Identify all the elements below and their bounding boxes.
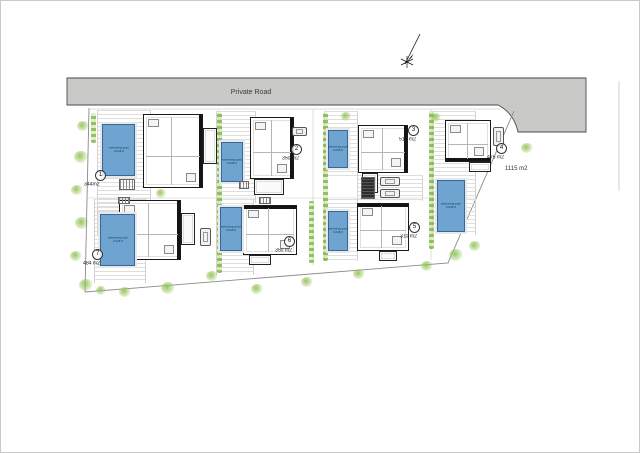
plot-number: 3 [408, 125, 419, 136]
hedge-strip [429, 111, 434, 249]
furniture-icon [186, 173, 196, 182]
hedge-strip [309, 201, 314, 263]
stairs-icon [259, 197, 271, 204]
room-divider [146, 156, 200, 157]
swimming-pool-label: swimming pool4.0x8.0 [441, 203, 461, 210]
swimming-pool: swimming pool4.0x8.0 [220, 207, 242, 251]
bush-icon [79, 279, 93, 291]
room-divider [360, 230, 406, 231]
room-divider [271, 120, 272, 176]
plot-number: 6 [284, 236, 295, 247]
villa-floorplan [358, 125, 408, 173]
stairs-icon [239, 181, 249, 189]
furniture-icon [362, 208, 373, 216]
furniture-icon [148, 119, 159, 127]
swimming-pool: swimming pool4.0x8.0 [437, 180, 465, 232]
room-divider [381, 206, 382, 248]
car-icon [292, 127, 307, 136]
swimming-pool: swimming pool4.0x8.0 [328, 130, 348, 168]
furniture-icon [124, 205, 135, 213]
villa-annex [379, 251, 397, 261]
room-divider [253, 152, 291, 153]
road-label: Private Road [231, 89, 272, 96]
stairs-icon [361, 177, 375, 199]
villa-annex [203, 128, 217, 164]
villa-annex [181, 213, 195, 245]
furniture-icon [248, 210, 259, 218]
furniture-icon [363, 130, 374, 138]
room-divider [268, 208, 269, 252]
room-divider [382, 128, 383, 170]
bush-icon [341, 112, 351, 121]
plot-number: 2 [291, 144, 302, 155]
villa-wall [358, 204, 408, 207]
plot-area: 350 m2 [282, 156, 299, 161]
swimming-pool-label: swimming pool4.0x8.0 [108, 237, 128, 244]
furniture-icon [255, 122, 266, 130]
bush-icon [96, 286, 106, 295]
stairs-icon [118, 197, 130, 204]
plot-area: 475 m2 [487, 155, 504, 160]
plot-number: 5 [409, 222, 420, 233]
swimming-pool-label: swimming pool4.0x8.0 [328, 146, 348, 153]
stairs-icon [119, 179, 135, 190]
villa-wall [244, 206, 296, 209]
room-divider [171, 117, 172, 185]
villa-annex [469, 162, 491, 172]
hedge-strip [91, 113, 96, 143]
bush-icon [75, 217, 89, 229]
plot-number: 1 [95, 170, 106, 181]
swimming-pool: swimming pool4.0x8.0 [221, 142, 243, 182]
bush-icon [74, 151, 88, 163]
plot-area: 510 m2 [399, 137, 416, 142]
furniture-icon [164, 245, 174, 254]
swimming-pool: swimming pool4.0x8.0 [102, 124, 135, 176]
site-plan-canvas: Private Road 1115 m2 swimming pool4.0x8.… [0, 0, 640, 453]
swimming-pool-label: swimming pool4.0x8.0 [222, 159, 242, 166]
room-divider [361, 152, 405, 153]
villa-wall [199, 115, 202, 187]
furniture-icon [450, 125, 461, 133]
swimming-pool-label: swimming pool4.0x8.0 [109, 147, 129, 154]
room-divider [246, 234, 294, 235]
bush-icon [449, 249, 463, 261]
right-plot-area-label: 1115 m2 [505, 166, 528, 172]
plot-area: 350 m2 [275, 248, 292, 253]
swimming-pool-label: swimming pool4.0x8.0 [221, 226, 241, 233]
plot-number: 7 [92, 249, 103, 260]
bush-icon [431, 113, 441, 122]
room-divider [467, 123, 468, 159]
villa-annex [254, 179, 284, 195]
villa-floorplan [357, 203, 409, 251]
villa-floorplan [445, 120, 491, 162]
plot-area: 484 m2 [83, 261, 100, 266]
furniture-icon [277, 164, 287, 173]
car-icon [380, 189, 400, 198]
villa-floorplan [250, 117, 294, 179]
villa-floorplan [143, 114, 203, 188]
room-divider [448, 144, 488, 145]
plot-area: 344m2 [84, 182, 100, 187]
room-divider [148, 203, 149, 257]
swimming-pool: swimming pool4.0x8.0 [328, 211, 348, 251]
swimming-pool: swimming pool4.0x8.0 [100, 214, 135, 266]
plot-number: 4 [496, 143, 507, 154]
villa-wall [446, 158, 490, 161]
furniture-icon [391, 158, 401, 167]
villa-wall [404, 126, 407, 172]
car-icon [380, 177, 400, 186]
villa-annex [249, 255, 271, 265]
plot-area: 310 m2 [400, 234, 417, 239]
bush-icon [161, 282, 175, 294]
car-icon [200, 228, 211, 246]
north-arrow-icon [401, 34, 420, 68]
furniture-icon [474, 147, 484, 156]
swimming-pool-label: swimming pool4.0x8.0 [328, 228, 348, 235]
villa-wall [177, 201, 180, 259]
bush-icon [156, 189, 166, 198]
